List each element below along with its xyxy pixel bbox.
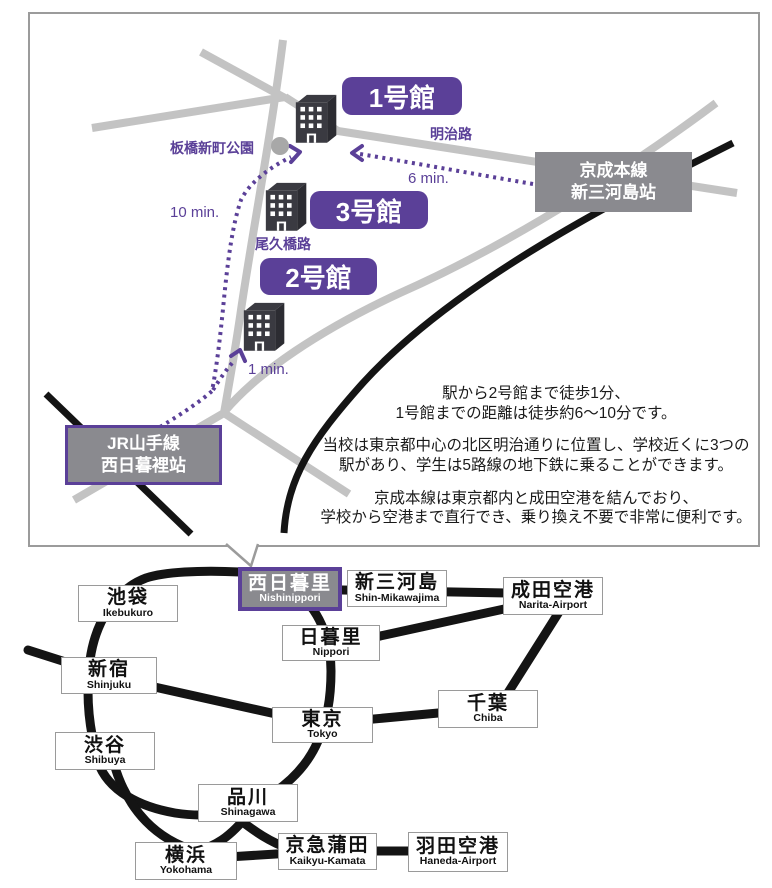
station-romaji: Shibuya xyxy=(85,755,126,766)
station-romaji: Tokyo xyxy=(307,729,337,740)
station-name: 横浜 xyxy=(165,846,207,866)
line-chiba-narita xyxy=(504,612,559,699)
building-label-text: 3号館 xyxy=(336,192,402,229)
station-name: 渋谷 xyxy=(84,736,126,756)
station-romaji: Kaikyu-Kamata xyxy=(290,856,366,867)
station-box-yokohama: 横浜 Yokohama xyxy=(135,842,237,880)
description-line: 駅があり、学生は5路線の地下鉄に乗ることができます。 xyxy=(339,457,733,474)
station-name: 新宿 xyxy=(88,660,130,680)
station-box-shibuya: 渋谷 Shibuya xyxy=(55,732,155,770)
station-romaji: Narita-Airport xyxy=(519,600,587,611)
description-paragraph: 当校は東京都中心の北区明治通りに位置し、学校近くに3つの 駅があり、学生は5路線… xyxy=(308,436,764,475)
description-line: 当校は東京都中心の北区明治通りに位置し、学校近くに3つの xyxy=(322,437,749,454)
building-label-text: 2号館 xyxy=(285,258,351,295)
station-romaji: Nishinippori xyxy=(259,593,320,604)
station-romaji: Shinagawa xyxy=(221,807,276,818)
station-box-shinagawa: 品川 Shinagawa xyxy=(198,784,298,822)
station-name: 新三河島站 xyxy=(571,182,656,204)
station-box-ikebukuro: 池袋 Ikebukuro xyxy=(78,585,178,622)
station-box-nippori: 日暮里 Nippori xyxy=(282,625,380,661)
station-romaji: Shinjuku xyxy=(87,680,131,691)
station-box-keisei-shinmikawajima: 京成本線 新三河島站 xyxy=(535,152,692,212)
station-romaji: Shin-Mikawajima xyxy=(355,593,440,604)
station-name: 日暮里 xyxy=(299,628,362,648)
station-romaji: Nippori xyxy=(313,647,350,658)
station-name: 新三河島 xyxy=(355,573,439,593)
station-box-haneda-airport: 羽田空港 Haneda-Airport xyxy=(408,832,508,872)
line-shibuya-yokohama xyxy=(114,764,196,851)
building-label-text: 1号館 xyxy=(369,78,435,115)
walk-time-10min: 10 min. xyxy=(170,204,219,221)
building-label-1: 1号館 xyxy=(342,77,462,115)
station-name: 京急蒲田 xyxy=(285,836,369,856)
station-name: 西日暮里 xyxy=(248,574,332,594)
station-line-name: 京成本線 xyxy=(580,160,648,182)
station-box-nishinippori: 西日暮里 Nishinippori xyxy=(238,567,342,611)
description-paragraph: 京成本線は東京都内と成田空港を結んでおり、 学校から空港まで直行でき、乗り換え不… xyxy=(308,489,764,528)
station-box-chiba: 千葉 Chiba xyxy=(438,690,538,728)
description-line: 1号館までの距離は徒歩約6～10分です。 xyxy=(396,405,677,422)
station-name: 池袋 xyxy=(107,588,149,608)
station-box-shinmikawajima: 新三河島 Shin-Mikawajima xyxy=(347,570,447,607)
access-description: 駅から2号館まで徒歩1分、 1号館までの距離は徒歩約6～10分です。 当校は東京… xyxy=(308,384,764,541)
station-name: 西日暮裡站 xyxy=(101,455,186,477)
access-map-page: 1号館 3号館 2号館 京成本線 新三河島站 JR山手線 西日暮裡站 板橋新町公… xyxy=(0,0,772,888)
building-label-2: 2号館 xyxy=(260,258,377,295)
station-name: 千葉 xyxy=(467,694,509,714)
road-label-meiji: 明治路 xyxy=(430,124,472,144)
station-name: 東京 xyxy=(301,710,343,730)
description-line: 学校から空港まで直行でき、乗り換え不要で非常に便利です。 xyxy=(320,509,751,526)
walk-time-1min: 1 min. xyxy=(248,361,289,378)
road-label-ogubashi: 尾久橋路 xyxy=(255,234,311,254)
station-name: 品川 xyxy=(227,788,269,808)
description-line: 京成本線は東京都内と成田空港を結んでおり、 xyxy=(374,490,698,507)
station-box-tokyo: 東京 Tokyo xyxy=(272,707,373,743)
park-label: 板橋新町公園 xyxy=(170,138,254,158)
walk-time-6min: 6 min. xyxy=(408,170,449,187)
building-label-3: 3号館 xyxy=(310,191,428,229)
description-paragraph: 駅から2号館まで徒歩1分、 1号館までの距離は徒歩約6～10分です。 xyxy=(308,384,764,423)
station-box-shinjuku: 新宿 Shinjuku xyxy=(61,657,157,694)
station-name: 羽田空港 xyxy=(416,837,500,857)
station-box-narita-airport: 成田空港 Narita-Airport xyxy=(503,577,603,615)
station-box-kaikyu-kamata: 京急蒲田 Kaikyu-Kamata xyxy=(278,833,377,870)
callout-tail xyxy=(226,544,258,566)
station-romaji: Haneda-Airport xyxy=(420,856,496,867)
station-romaji: Chiba xyxy=(473,713,502,724)
station-romaji: Ikebukuro xyxy=(103,608,153,619)
station-box-jr-nishinippori: JR山手線 西日暮裡站 xyxy=(65,425,222,485)
station-romaji: Yokohama xyxy=(160,865,212,876)
station-line-name: JR山手線 xyxy=(107,433,180,455)
description-line: 駅から2号館まで徒歩1分、 xyxy=(442,385,630,402)
station-name: 成田空港 xyxy=(511,581,595,601)
